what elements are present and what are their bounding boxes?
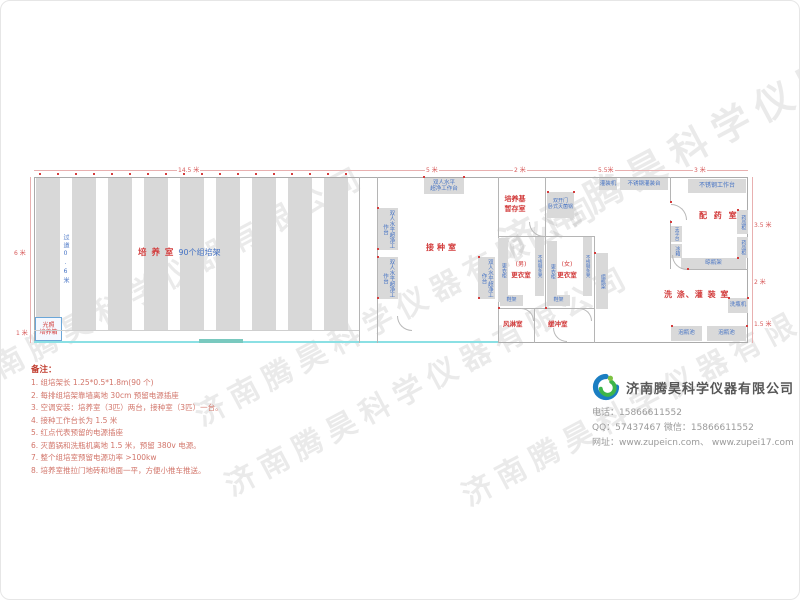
shoe-rack-1: 鞋架: [500, 295, 523, 306]
sliding-door-track: [34, 341, 498, 343]
power-outlet-dot: [273, 173, 275, 175]
power-outlet-dot: [237, 173, 239, 175]
company-qq-wechat: QQ：57437467 微信：15866611552: [592, 421, 797, 436]
wall: [545, 177, 546, 308]
bottle-washer: 洗瓶机: [728, 298, 748, 313]
power-outlet-dot: [687, 268, 689, 270]
dim-inoculation-width: 5 米: [425, 165, 439, 174]
bench-male: 不锈钢条凳: [535, 237, 544, 296]
power-outlet-dot: [728, 297, 730, 299]
male-changing-label: (男) 更衣室: [507, 260, 535, 280]
wall: [359, 177, 360, 343]
dim-right-lower: 1.5 米: [753, 319, 772, 328]
power-outlet-dot: [219, 173, 221, 175]
wall: [534, 308, 535, 343]
dim-right-middle: 2 米: [753, 277, 767, 286]
wall: [498, 236, 594, 237]
company-info: 济南腾昊科学仪器有限公司 电话：15866611552 QQ：57437467 …: [592, 373, 797, 451]
power-outlet-dot: [291, 173, 293, 175]
medicine-cabinet-2: 药品柜: [737, 237, 748, 258]
male-label-1: (男): [516, 260, 527, 270]
power-outlet-dot: [377, 256, 379, 258]
company-website: 网址：www.zupeicn.com、 www.zupei17.com: [592, 436, 797, 451]
culture-room-name: 培 养 室: [138, 246, 174, 258]
aisle-label: 过道0.6米: [61, 234, 70, 314]
notes-title: 备注：: [31, 363, 331, 375]
power-outlet-dot: [39, 173, 41, 175]
clean-bench-top: 双人水平 超净工作台: [424, 178, 464, 194]
stainless-worktable: 不锈钢工作台: [688, 179, 746, 193]
power-outlet-dot: [747, 297, 749, 299]
wall: [670, 177, 671, 203]
female-changing-label: (女) 更衣室: [553, 260, 581, 280]
culture-rack-count: 90个组培架: [178, 247, 220, 258]
culture-rack-row: [288, 178, 312, 330]
filling-table: 不锈钢灌装台: [620, 178, 668, 190]
note-item: 3. 空调安装：培养室（3匹）两台，接种室（3匹）一台。: [31, 402, 331, 415]
power-outlet-dot: [670, 221, 672, 223]
power-outlet-dot: [327, 173, 329, 175]
culture-room-label: 培 养 室 90个组培架: [138, 246, 221, 258]
female-label-1: (女): [562, 260, 573, 270]
washing-room-label: 洗 涤、灌 装 室: [664, 289, 729, 300]
power-outlet-dot: [498, 307, 500, 309]
buffer-room-label: 缓冲室: [548, 318, 568, 328]
company-name: 济南腾昊科学仪器有限公司: [626, 378, 794, 397]
incubator-label-1: 光照: [42, 322, 54, 329]
female-label-2: 更衣室: [557, 270, 577, 280]
company-logo-icon: [592, 373, 620, 401]
lighted-incubator: 光照 培养箱: [35, 317, 62, 341]
power-outlet-dot: [737, 209, 739, 211]
power-outlet-dot: [670, 201, 672, 203]
power-outlet-dot: [93, 173, 95, 175]
dimension-line-left: [30, 177, 31, 343]
clean-bench-left-2: 双人水平超净工作台: [378, 257, 398, 299]
note-item: 4. 接种工作台长为 1.5 米: [31, 415, 331, 428]
power-outlet-dot: [737, 257, 739, 259]
autoclave: 双开门 卧式灭菌锅: [547, 192, 574, 218]
dim-storage-width: 2 米: [513, 165, 527, 174]
balance-table: 天平台: [671, 226, 682, 242]
note-item: 2. 每排组培架靠墙离地 30cm 预留电源插座: [31, 390, 331, 403]
note-item: 6. 灭菌锅和洗瓶机离地 1.5 米，预留 380v 电源。: [31, 440, 331, 453]
power-outlet-dot: [129, 173, 131, 175]
sliding-door: [199, 339, 243, 343]
soak-pool-1: 泡瓶池: [671, 326, 702, 341]
power-outlet-dot: [463, 176, 465, 178]
culture-rack-row: [36, 178, 60, 330]
note-item: 5. 红点代表预留的电源插座: [31, 427, 331, 440]
power-outlet-dot: [671, 325, 673, 327]
company-phone: 电话：15866611552: [592, 406, 797, 421]
dim-right-upper: 3.5 米: [753, 220, 772, 229]
medium-storage-label: 培养基 暂存室: [499, 194, 531, 214]
clean-bench-right: 双人水平超净工作台: [478, 257, 495, 299]
note-item: 8. 培养室推拉门地砖和地面一平，方便小推车推送。: [31, 465, 331, 478]
power-outlet-dot: [111, 173, 113, 175]
bench-female: 不锈钢条凳: [583, 237, 592, 296]
dim-room-depth: 6 米: [13, 248, 27, 257]
power-outlet-dot: [345, 173, 347, 175]
dim-corridor-depth: 1 米: [15, 328, 29, 337]
power-outlet-dot: [746, 325, 748, 327]
medium-storage-line-2: 暂存室: [505, 204, 526, 214]
power-outlet-dot: [57, 173, 59, 175]
shoe-rack-2: 鞋架: [547, 295, 570, 306]
power-outlet-dot: [183, 173, 185, 175]
inoculation-room-label: 接种室: [426, 242, 459, 253]
soak-pool-2: 泡瓶池: [707, 326, 746, 341]
power-outlet-dot: [594, 252, 596, 254]
wall: [687, 269, 748, 270]
power-outlet-dot: [377, 248, 379, 250]
filling-machine: 灌装机: [599, 178, 617, 190]
power-outlet-dot: [165, 173, 167, 175]
medium-storage-line-1: 培养基: [505, 194, 526, 204]
dim-pharmacy-width: 3 米: [693, 165, 707, 174]
note-item: 1. 组培架长 1.25*0.5*1.8m(90 个): [31, 377, 331, 390]
power-outlet-dot: [478, 256, 480, 258]
air-shower-label: 风淋室: [503, 318, 523, 328]
power-outlet-dot: [377, 297, 379, 299]
bottle-rack: 组瓶架: [596, 253, 608, 309]
autoclave-label-2: 卧式灭菌锅: [548, 205, 573, 211]
note-item: 7. 整个组培室预留电源功率 >100kw: [31, 452, 331, 465]
dim-washing-width: 5.5米: [597, 165, 615, 174]
dim-culture-width: 14.5 米: [177, 165, 200, 174]
culture-rack-row: [72, 178, 96, 330]
corridor-wall: [34, 330, 359, 331]
power-outlet-dot: [147, 173, 149, 175]
floor-plan-page: 济南腾昊科学仪器有限公司 济南腾昊科学仪器有限公司 济南腾昊科学仪器有限公司 济…: [0, 0, 800, 600]
power-outlet-dot: [255, 173, 257, 175]
culture-rack-row: [252, 178, 276, 330]
clean-bench-label-2: 超净工作台: [430, 186, 458, 192]
male-label-2: 更衣室: [511, 270, 531, 280]
culture-rack-row: [324, 178, 348, 330]
power-outlet-dot: [573, 191, 575, 193]
power-outlet-dot: [201, 173, 203, 175]
dimension-line-top: [34, 170, 748, 171]
clean-bench-left-1: 双人水平超净工作台: [378, 208, 398, 250]
power-outlet-dot: [423, 176, 425, 178]
notes-section: 备注： 1. 组培架长 1.25*0.5*1.8m(90 个) 2. 每排组培架…: [31, 363, 331, 477]
power-outlet-dot: [547, 191, 549, 193]
power-outlet-dot: [75, 173, 77, 175]
culture-rack-row: [108, 178, 132, 330]
drying-rack: 晾瓶架: [681, 258, 746, 269]
power-outlet-dot: [377, 207, 379, 209]
power-outlet-dot: [545, 307, 547, 309]
power-outlet-dot: [309, 173, 311, 175]
pharmacy-room-label: 配 药 室: [699, 210, 739, 221]
power-outlet-dot: [478, 297, 480, 299]
